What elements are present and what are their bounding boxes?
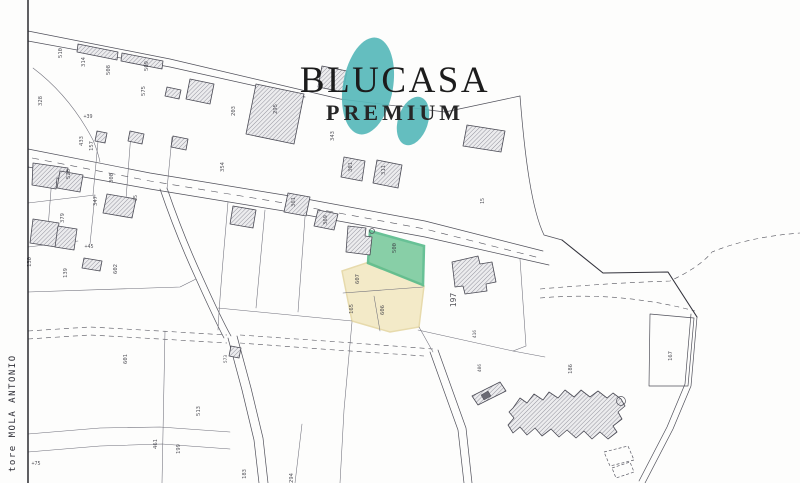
parcel-label-203: 203 — [231, 106, 237, 116]
parcel-label-347: 347 — [93, 196, 99, 206]
parcel-label-573: 573 — [223, 355, 229, 363]
parcel-label-369: 369 — [323, 215, 329, 225]
parcel-label-601: 601 — [123, 354, 129, 364]
parcel-label-509: 509 — [144, 61, 150, 71]
parcel-label-361: 361 — [291, 197, 297, 207]
parcel-label-+45: +45 — [84, 244, 93, 250]
parcel-label-500: 500 — [392, 243, 398, 253]
parcel-label-+39: +39 — [83, 114, 92, 120]
parcel-label-606: 606 — [380, 305, 386, 315]
brand-title: BLUCASA — [300, 60, 490, 101]
parcel-label-528: 528 — [66, 169, 72, 179]
brand-tier: PREMIUM — [326, 100, 464, 125]
scanned-cadastral-map-page: 510314508509575328+394331572032953433545… — [0, 0, 800, 483]
parcel-label-197: 197 — [449, 293, 458, 308]
parcel-label-+75: +75 — [31, 461, 40, 467]
parcel-label-311: 311 — [381, 165, 387, 175]
parcel-label-295: 295 — [273, 104, 279, 114]
parcel-label-343: 343 — [330, 131, 336, 141]
cadastral-map: 510314508509575328+394331572032953433545… — [0, 0, 800, 483]
parcel-label-157: 157 — [89, 141, 95, 151]
parcel-label-513: 513 — [196, 406, 202, 416]
parcel-label-314: 314 — [81, 56, 87, 67]
parcel-label-183: 183 — [242, 469, 248, 479]
parcel-label-510: 510 — [58, 48, 64, 58]
parcel-label-328: 328 — [38, 96, 44, 106]
parcel-label-294: 294 — [289, 472, 295, 483]
parcel-label-15: 15 — [480, 198, 486, 204]
parcel-label-508: 508 — [106, 65, 112, 75]
margin-note: tore MOLA ANTONIO — [8, 354, 18, 472]
parcel-label-461: 461 — [153, 439, 159, 449]
parcel-label-607: 607 — [355, 274, 361, 284]
parcel-label-35: 35 — [133, 195, 139, 201]
parcel-label-167: 167 — [668, 351, 674, 361]
parcel-label-575: 575 — [141, 86, 147, 96]
parcel-label-433: 433 — [79, 136, 85, 146]
parcel-label-354: 354 — [220, 161, 226, 172]
parcel-label-602: 602 — [113, 264, 119, 274]
parcel-label-186: 186 — [568, 364, 574, 374]
parcel-label-379: 379 — [60, 213, 66, 223]
parcel-label-406: 406 — [477, 364, 483, 372]
parcel-label-308: 308 — [109, 173, 115, 183]
parcel-label-301: 301 — [348, 162, 354, 172]
parcel-label-416: 416 — [472, 330, 478, 338]
parcel-label-139: 139 — [63, 268, 69, 278]
parcel-label-199: 199 — [176, 444, 182, 454]
parcel-label-165: 165 — [349, 304, 355, 314]
